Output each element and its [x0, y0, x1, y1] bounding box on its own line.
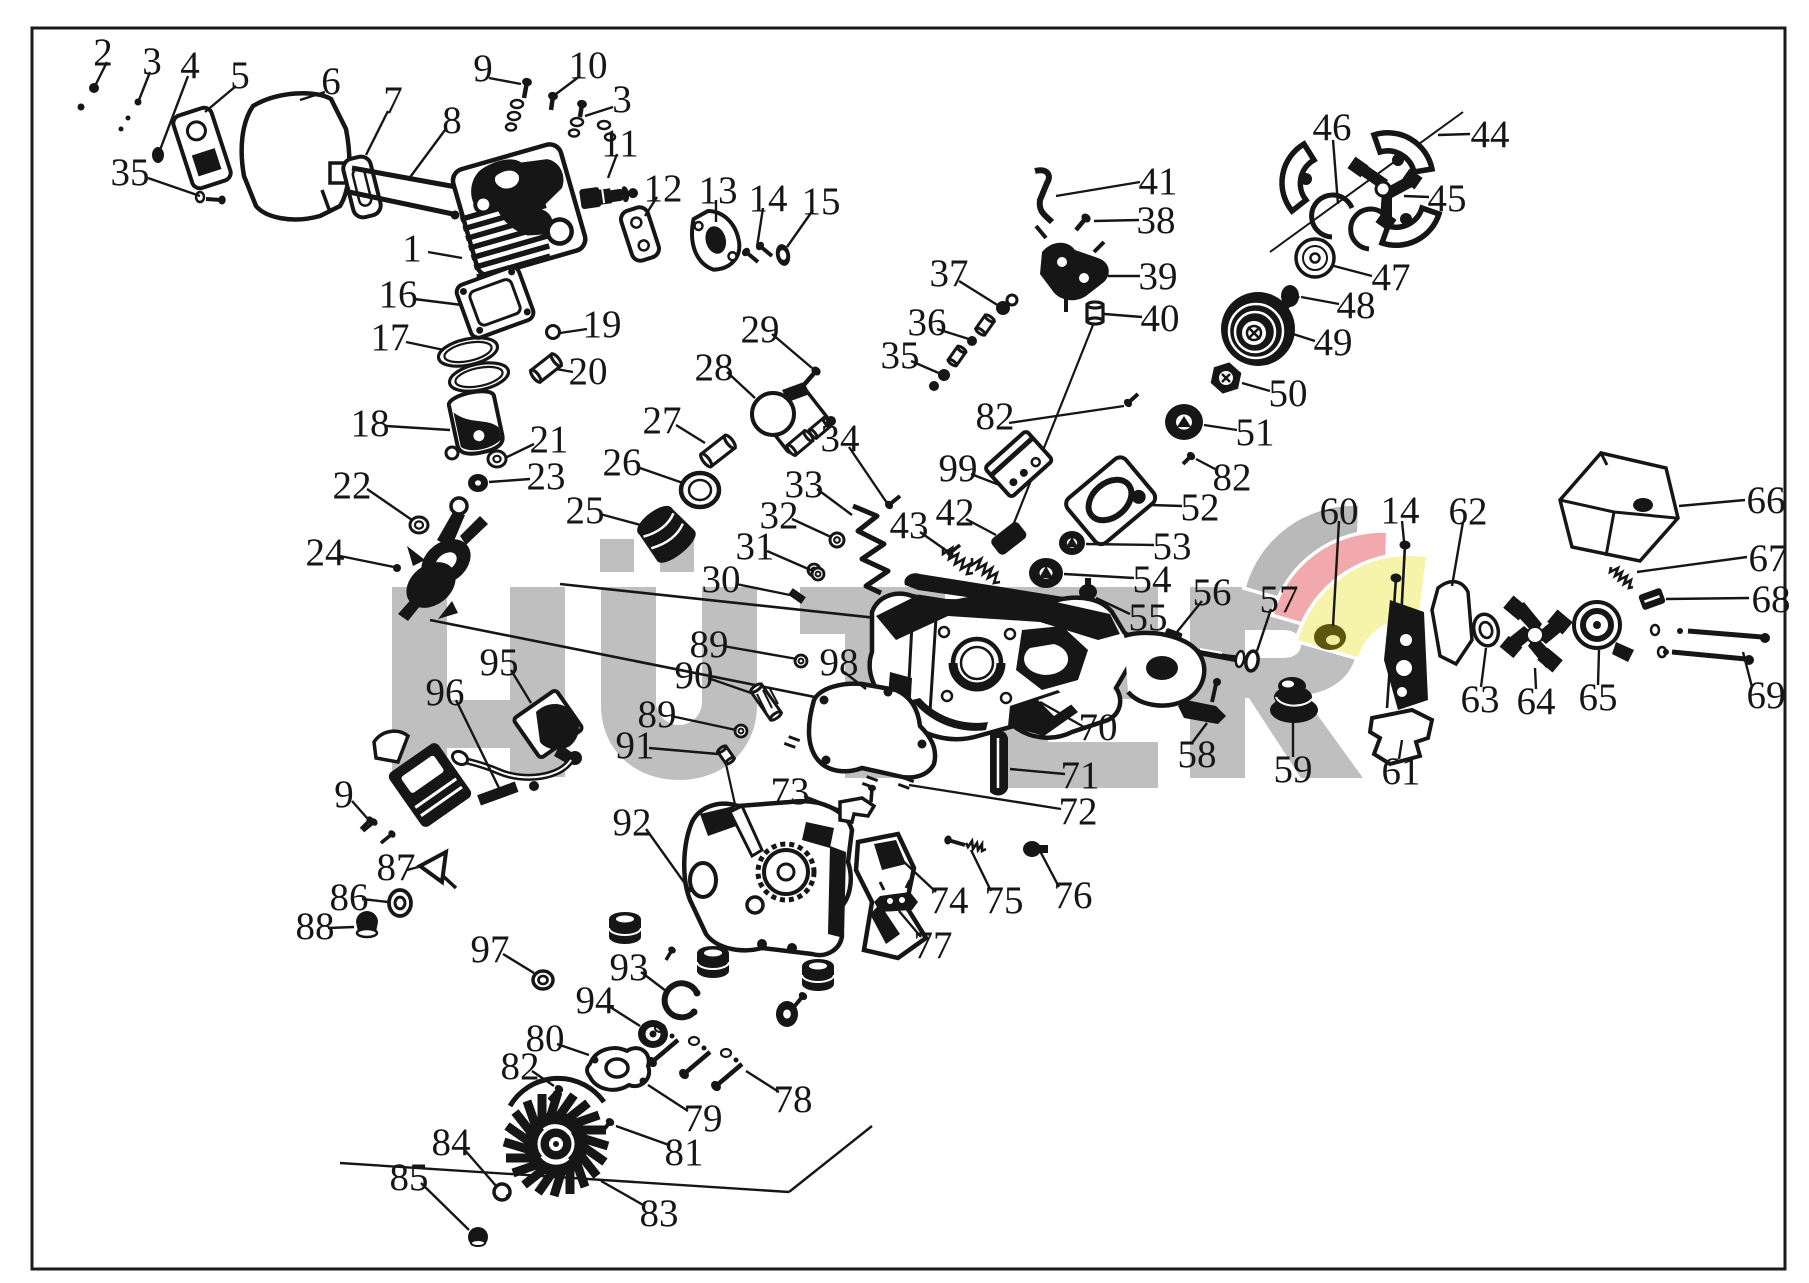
svg-text:47: 47 — [1372, 256, 1411, 299]
svg-text:13: 13 — [699, 169, 738, 212]
svg-text:5: 5 — [230, 54, 250, 97]
svg-text:87: 87 — [377, 846, 416, 889]
svg-text:75: 75 — [985, 879, 1024, 922]
svg-text:66: 66 — [1747, 479, 1786, 522]
svg-text:90: 90 — [675, 654, 714, 697]
svg-text:11: 11 — [601, 122, 639, 165]
svg-text:26: 26 — [603, 441, 642, 484]
svg-text:37: 37 — [930, 252, 969, 295]
svg-text:56: 56 — [1193, 571, 1232, 614]
svg-text:63: 63 — [1461, 678, 1500, 721]
svg-text:19: 19 — [583, 303, 622, 346]
svg-text:20: 20 — [569, 350, 608, 393]
svg-text:43: 43 — [890, 504, 929, 547]
svg-text:52: 52 — [1181, 486, 1220, 529]
svg-text:84: 84 — [432, 1121, 471, 1164]
svg-text:24: 24 — [306, 531, 345, 574]
svg-text:2: 2 — [93, 31, 113, 74]
svg-text:96: 96 — [426, 671, 465, 714]
svg-text:40: 40 — [1141, 297, 1180, 340]
svg-text:51: 51 — [1236, 411, 1275, 454]
svg-text:31: 31 — [736, 525, 775, 568]
svg-text:82: 82 — [976, 395, 1015, 438]
svg-text:59: 59 — [1274, 748, 1313, 791]
svg-text:28: 28 — [695, 346, 734, 389]
svg-text:81: 81 — [665, 1131, 704, 1174]
svg-text:14: 14 — [749, 177, 788, 220]
svg-text:3: 3 — [612, 78, 632, 121]
svg-text:76: 76 — [1054, 874, 1093, 917]
svg-text:9: 9 — [334, 773, 354, 816]
svg-text:91: 91 — [616, 724, 655, 767]
svg-text:70: 70 — [1079, 706, 1118, 749]
svg-text:14: 14 — [1381, 489, 1420, 532]
svg-text:30: 30 — [702, 558, 741, 601]
svg-text:41: 41 — [1139, 160, 1178, 203]
svg-text:94: 94 — [576, 979, 615, 1022]
svg-text:35: 35 — [111, 151, 150, 194]
svg-text:46: 46 — [1313, 106, 1352, 149]
svg-text:78: 78 — [774, 1078, 813, 1121]
svg-text:55: 55 — [1129, 596, 1168, 639]
svg-text:9: 9 — [473, 47, 493, 90]
svg-text:92: 92 — [613, 801, 652, 844]
svg-text:88: 88 — [296, 905, 335, 948]
svg-text:73: 73 — [771, 770, 810, 813]
svg-text:49: 49 — [1314, 321, 1353, 364]
svg-text:62: 62 — [1449, 490, 1488, 533]
svg-text:38: 38 — [1137, 199, 1176, 242]
svg-text:85: 85 — [390, 1156, 429, 1199]
svg-text:18: 18 — [351, 402, 390, 445]
svg-text:99: 99 — [939, 447, 978, 490]
svg-text:72: 72 — [1059, 790, 1098, 833]
svg-text:35: 35 — [881, 334, 920, 377]
svg-text:58: 58 — [1178, 733, 1217, 776]
svg-text:98: 98 — [820, 641, 859, 684]
svg-text:68: 68 — [1752, 578, 1791, 621]
svg-text:83: 83 — [640, 1192, 679, 1235]
svg-text:15: 15 — [802, 180, 841, 223]
svg-text:39: 39 — [1139, 255, 1178, 298]
svg-text:95: 95 — [480, 641, 519, 684]
svg-text:4: 4 — [180, 44, 200, 87]
svg-text:23: 23 — [527, 455, 566, 498]
svg-text:64: 64 — [1517, 680, 1556, 723]
svg-text:8: 8 — [442, 99, 462, 142]
svg-text:57: 57 — [1260, 578, 1299, 621]
svg-text:45: 45 — [1428, 177, 1467, 220]
svg-text:1: 1 — [402, 227, 422, 270]
svg-text:34: 34 — [821, 417, 860, 460]
svg-text:60: 60 — [1320, 490, 1359, 533]
svg-text:12: 12 — [644, 167, 683, 210]
svg-text:86: 86 — [330, 876, 369, 919]
svg-text:3: 3 — [142, 40, 162, 83]
svg-text:54: 54 — [1133, 558, 1172, 601]
svg-text:65: 65 — [1579, 676, 1618, 719]
svg-text:74: 74 — [930, 879, 969, 922]
svg-text:29: 29 — [741, 308, 780, 351]
svg-text:42: 42 — [936, 491, 975, 534]
svg-text:61: 61 — [1382, 750, 1421, 793]
svg-text:25: 25 — [566, 489, 605, 532]
svg-text:17: 17 — [371, 316, 410, 359]
svg-text:77: 77 — [914, 924, 953, 967]
svg-text:10: 10 — [569, 44, 608, 87]
svg-text:22: 22 — [333, 464, 372, 507]
svg-text:82: 82 — [501, 1045, 540, 1088]
svg-text:69: 69 — [1747, 674, 1786, 717]
svg-text:67: 67 — [1749, 537, 1788, 580]
svg-text:93: 93 — [610, 946, 649, 989]
svg-text:27: 27 — [643, 399, 682, 442]
svg-text:16: 16 — [379, 273, 418, 316]
svg-text:97: 97 — [471, 928, 510, 971]
svg-text:50: 50 — [1269, 372, 1308, 415]
svg-text:6: 6 — [321, 60, 341, 103]
svg-text:44: 44 — [1471, 113, 1510, 156]
svg-text:7: 7 — [383, 79, 403, 122]
